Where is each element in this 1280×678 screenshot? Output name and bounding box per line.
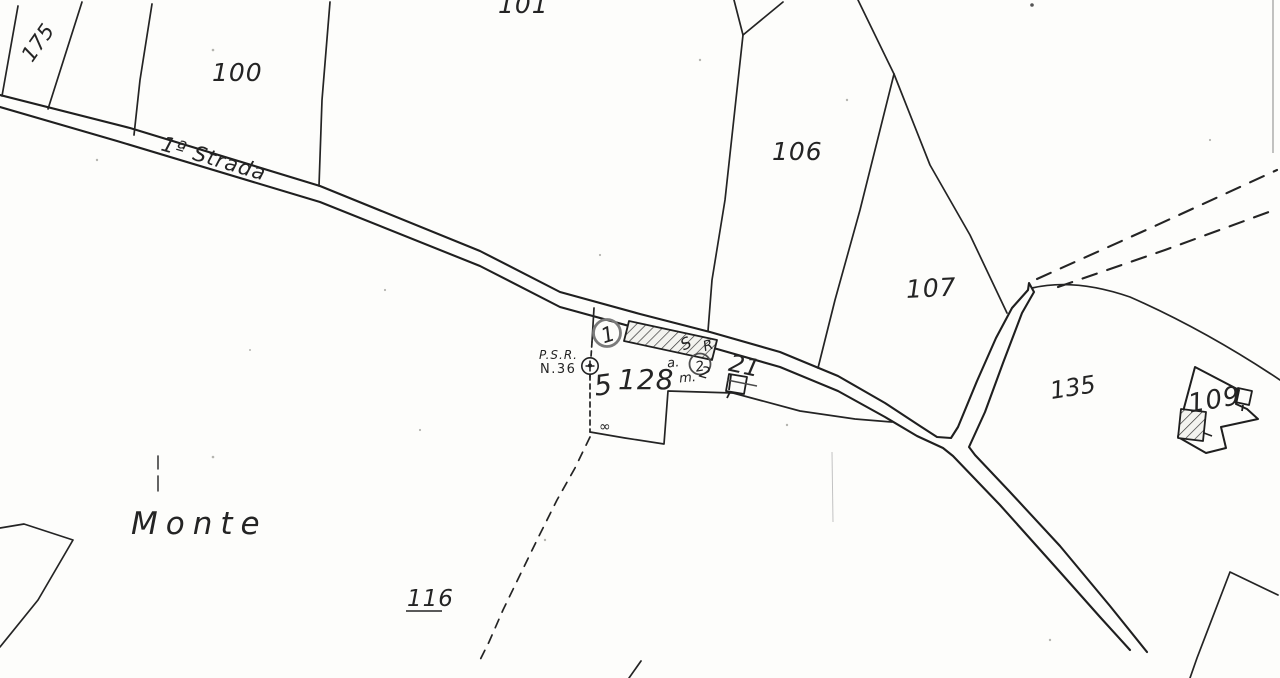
squiggle-infinity: ∞ — [599, 419, 611, 435]
boundary-106-107 — [818, 74, 894, 368]
handwritten-5: 5 — [592, 368, 614, 403]
parcel-label-106: 106 — [772, 137, 823, 166]
map-symbols — [406, 0, 1273, 611]
scribble-m: m. — [678, 370, 696, 386]
handwritten-annotations: 175 135 P.S.R. N.36 5 1 2 a. S R m. 2 21… — [17, 19, 1098, 435]
map-canvas: 100 101 106 107 109 116 128 1ª Strada Mo… — [0, 0, 1280, 678]
boundary-101-106-branch — [743, 2, 783, 35]
boundary-128-west-dashed — [590, 342, 592, 432]
parcel-label-107: 107 — [905, 272, 957, 304]
boundary-corner-se — [1190, 572, 1278, 678]
printed-labels: 100 101 106 107 109 116 128 1ª Strada Mo… — [131, 0, 1243, 612]
psr-annotation-line2: N.36 — [540, 362, 576, 377]
parcel-label-109: 109 — [1186, 381, 1243, 420]
cadastral-map: 100 101 106 107 109 116 128 1ª Strada Mo… — [0, 0, 1280, 678]
boundary-100-west — [134, 4, 152, 135]
scan-faint-line — [832, 452, 833, 522]
parcel-label-101: 101 — [498, 0, 549, 19]
handwritten-175: 175 — [17, 19, 60, 66]
boundary-106-top — [858, 0, 894, 74]
parcel-label-128: 128 — [618, 363, 674, 396]
road-label: 1ª Strada — [159, 132, 270, 186]
parcel-label-100: 100 — [212, 58, 263, 87]
psr-annotation-line1: P.S.R. — [539, 348, 578, 362]
handwritten-21: 21 — [726, 349, 762, 383]
boundary-100-101 — [319, 2, 330, 186]
boundary-left-1 — [2, 6, 18, 96]
dashed-track — [1037, 170, 1277, 287]
place-label-monte: Monte — [131, 506, 268, 542]
parcel-label-116: 116 — [407, 586, 454, 612]
scribble-a: a. — [666, 355, 680, 371]
boundary-bottom-tick — [629, 661, 641, 678]
scan-specks — [96, 3, 1211, 641]
road-lower-edge — [0, 107, 1130, 650]
dashed-track-upper — [1037, 170, 1277, 279]
building-109-tick — [1204, 433, 1212, 436]
boundary-dashed-south — [478, 437, 590, 664]
boundary-curve-east — [1032, 285, 1280, 380]
boundary-left-2 — [48, 2, 82, 109]
boundary-101-106 — [708, 0, 743, 331]
boundary-wedge-sw — [0, 524, 73, 647]
handwritten-135-faint: 135 — [1048, 370, 1098, 405]
